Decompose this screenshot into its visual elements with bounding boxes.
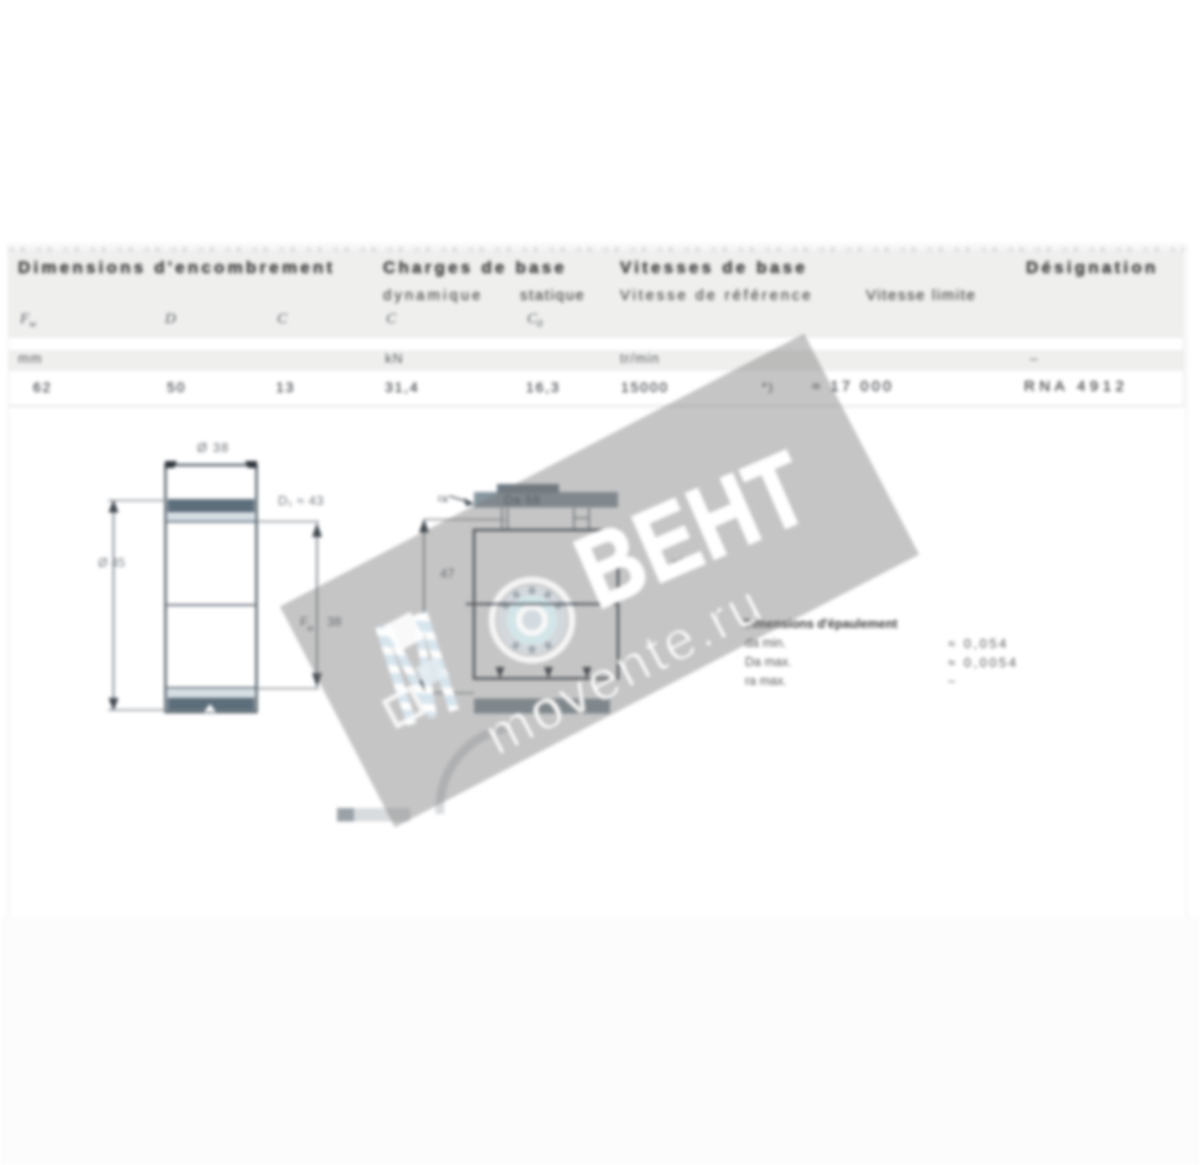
svg-text:Ø 45: Ø 45 — [98, 556, 125, 570]
svg-text:Ø 38: Ø 38 — [197, 440, 229, 455]
svg-text:ra: ra — [438, 493, 449, 505]
svg-text:D₁ ≈ 43: D₁ ≈ 43 — [278, 493, 324, 508]
